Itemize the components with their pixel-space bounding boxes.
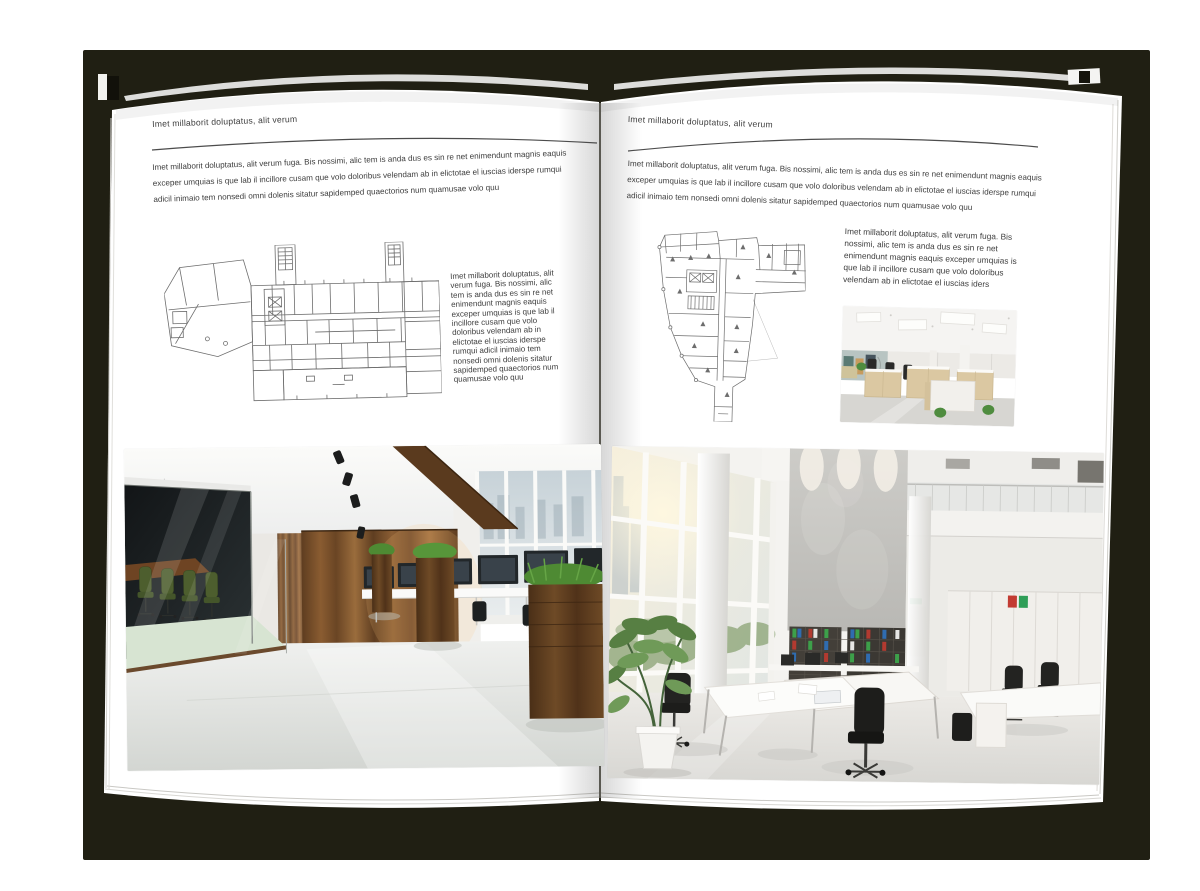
right-page-side-text: Imet millaborit doluptatus, alit verum f… [843,225,1023,291]
right-page-photo-white-office [607,446,1104,785]
cover-notch-right [1079,71,1090,83]
concrete-wall [787,446,908,632]
floor-plan-drawing-right [652,227,807,424]
sofa [841,366,857,378]
page-edge-sliver-left [98,74,107,100]
office-photo-small [840,306,1017,427]
office-photo-right [607,446,1104,785]
foreground-cabinet [924,380,975,411]
cover-notch-left [107,76,119,100]
right-page-small-photo-office [840,306,1017,427]
left-floor-plan [163,241,442,405]
office-photo-left [124,444,604,771]
wood-panel-strip [277,533,304,657]
floor-plan-drawing-left [163,241,442,405]
left-page-side-text: Imet millaborit doluptatus, alit verum f… [450,268,568,385]
column-back [907,496,932,692]
mezzanine [907,450,1104,539]
left-page-photo-office-wood-glass [124,444,604,771]
right-wall-cabinets [905,536,1103,699]
right-floor-plan [652,227,807,424]
